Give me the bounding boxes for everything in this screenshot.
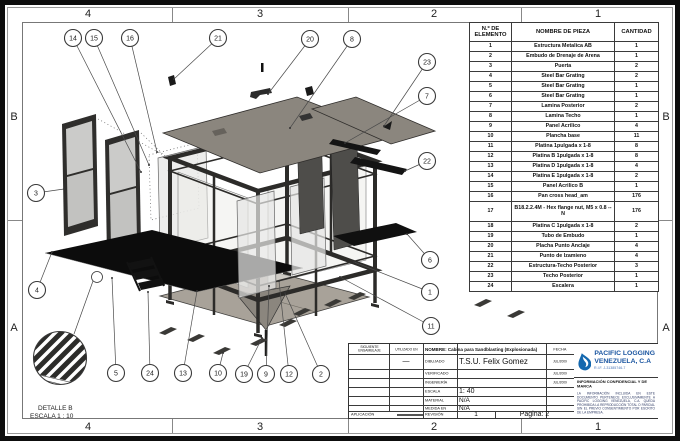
svg-text:20: 20 (306, 36, 314, 43)
bom-row: 15Panel Acrilico B1 (470, 182, 659, 192)
company-rif: R.I.F. J-31385746-7 (594, 366, 627, 370)
company-name-line1: PACIFIC LOGGING (594, 350, 655, 358)
balloon-callout-21: 21 (173, 30, 227, 81)
balloon-callout-24: 24 (142, 291, 159, 382)
detail-view-b (0, 328, 123, 392)
svg-text:9: 9 (264, 371, 268, 378)
bom-header-row: N.º DE ELEMENTO NOMBRE DE PIEZA CANTIDAD (470, 23, 659, 42)
revision-value: 1 (457, 411, 495, 418)
revision-label: REVISIÓN (423, 411, 457, 418)
title-block: SIGUIENTE ENSAMBLAJE UTILIZADO EN — NOMB… (348, 343, 658, 419)
checked-date: JUL/2009 (546, 369, 574, 378)
detail-title: DETALLE B (38, 405, 73, 412)
svg-text:5: 5 (114, 370, 118, 377)
drawing-title: NOMBRE: Cabina para Sandblasting (Explos… (423, 344, 546, 354)
bom-row: 23Techo Posterior1 (470, 272, 659, 282)
balloon-callout-5: 5 (108, 277, 125, 382)
bom-row: 1Estructura Metalica AB1 (470, 42, 659, 52)
engineering-label: INGENIERÍA (423, 378, 457, 387)
svg-text:4: 4 (35, 287, 39, 294)
svg-text:3: 3 (34, 190, 38, 197)
company-name-line2: VENEZUELA, C.A (594, 358, 655, 366)
bom-row: 8Lamina Techo1 (470, 112, 659, 122)
balloon-callout-10: 10 (210, 352, 227, 382)
svg-text:8: 8 (350, 36, 354, 43)
scale-label: ESCALA (423, 387, 457, 396)
bom-row: 14Platina E 1pulgada x 1-82 (470, 172, 659, 182)
svg-text:23: 23 (423, 59, 431, 66)
company-logo-drop-icon (577, 350, 591, 373)
next-assembly-label: SIGUIENTE ENSAMBLAJE (349, 344, 389, 354)
svg-text:24: 24 (146, 370, 154, 377)
company-logo-row: PACIFIC LOGGING VENEZUELA, C.A R.I.F. J-… (574, 344, 658, 378)
svg-text:7: 7 (425, 93, 429, 100)
material-value: N/A (457, 396, 546, 405)
used-on-value: — (389, 354, 423, 369)
svg-text:21: 21 (214, 35, 222, 42)
drawing-sheet: 4 3 2 1 4 3 2 1 B A B A (0, 0, 680, 441)
svg-text:15: 15 (90, 35, 98, 42)
drawn-date: JUL/2009 (546, 354, 574, 369)
bom-row: 6Steel Bar Grating1 (470, 92, 659, 102)
svg-text:14: 14 (69, 35, 77, 42)
svg-text:11: 11 (427, 323, 434, 330)
bom-row: 13Platina D 1pulgada x 1-84 (470, 162, 659, 172)
confidential-body: LA INFORMACIÓN INCLUIDA EN ESTE DOCUMENT… (577, 392, 655, 415)
detail-leader (74, 281, 93, 334)
confidential-title: INFORMACIÓN CONFIDENCIAL Y DE MARCA (577, 380, 655, 389)
bom-row: 16Pan cross head_am176 (470, 192, 659, 202)
svg-text:1: 1 (428, 289, 432, 296)
bom-header-qty: CANTIDAD (615, 23, 659, 42)
material-label: MATERIAL (423, 396, 457, 405)
scale-value: 1: 40 (457, 387, 546, 396)
svg-text:2: 2 (319, 371, 323, 378)
acrylic-panel (237, 191, 276, 298)
balloon-callout-20: 20 (267, 31, 319, 96)
svg-text:6: 6 (428, 257, 432, 264)
svg-text:13: 13 (179, 370, 187, 377)
drawn-by-value: T.S.U. Felix Gomez (457, 354, 546, 369)
drawn-by-label: DIBUJADO (423, 354, 457, 369)
svg-text:16: 16 (126, 35, 134, 42)
company-block: PACIFIC LOGGING VENEZUELA, C.A R.I.F. J-… (574, 344, 658, 418)
detail-scale: ESCALA 1 : 10 (30, 413, 73, 420)
bom-row: 3Puerta2 (470, 62, 659, 72)
balloon-callout-11: 11 (339, 276, 440, 335)
balloon-callout-3: 3 (28, 185, 66, 202)
bom-row: 5Steel Bar Grating1 (470, 82, 659, 92)
bom-row: 19Tubo de Embudo1 (470, 232, 659, 242)
used-on-label: UTILIZADO EN (389, 344, 423, 354)
bom-row: 24Escalera1 (470, 282, 659, 292)
checked-by-label: VERIFICADO (423, 369, 457, 378)
bom-header-element: N.º DE ELEMENTO (470, 23, 512, 42)
lifting-point-screw (168, 75, 176, 86)
svg-text:22: 22 (423, 158, 431, 165)
hardware-bit (261, 63, 264, 72)
hardware-bit (305, 86, 314, 96)
bom-row: 2Embudo de Drenaje de Arena1 (470, 52, 659, 62)
application-label: APLICACIÓN (349, 411, 423, 418)
bom-row: 18Platina C 1pulgada x 1-82 (470, 222, 659, 232)
svg-text:10: 10 (214, 370, 222, 377)
balloon-callout-6: 6 (406, 233, 439, 269)
application-note (397, 414, 423, 416)
bom-row: 17B18.2.2.4M - Hex flange nut, M5 x 0.8 … (470, 202, 659, 222)
bom-row: 10Plancha base11 (470, 132, 659, 142)
bom-row: 11Platina 1pulgada x 1-88 (470, 142, 659, 152)
date-column-label: FECHA (546, 344, 574, 354)
bom-row: 4Steel Bar Grating2 (470, 72, 659, 82)
bom-table: N.º DE ELEMENTO NOMBRE DE PIEZA CANTIDAD… (469, 22, 659, 292)
svg-text:19: 19 (240, 371, 248, 378)
bom-row: 21Punto de Izamieno4 (470, 252, 659, 262)
detail-source-circle (92, 272, 103, 283)
door-panel (62, 114, 98, 236)
balloon-callout-4: 4 (29, 251, 54, 299)
engineering-date: JUL/2009 (546, 378, 574, 387)
bom-table-body: 1Estructura Metalica AB12Embudo de Drena… (470, 42, 659, 292)
bom-row: 22Estructura-Techo Posterior3 (470, 262, 659, 272)
bom-row: 7Lamina Posterior2 (470, 102, 659, 112)
bom-row: 9Panel Acrilico4 (470, 122, 659, 132)
page-number: Pagina: 2 (495, 411, 574, 418)
balloon-callout-22: 22 (404, 153, 436, 173)
bom-row: 12Platina B 1pulgada x 1-88 (470, 152, 659, 162)
svg-text:12: 12 (285, 371, 293, 378)
bom-row: 20Placha Punto Anclaje4 (470, 242, 659, 252)
bom-header-name: NOMBRE DE PIEZA (512, 23, 615, 42)
